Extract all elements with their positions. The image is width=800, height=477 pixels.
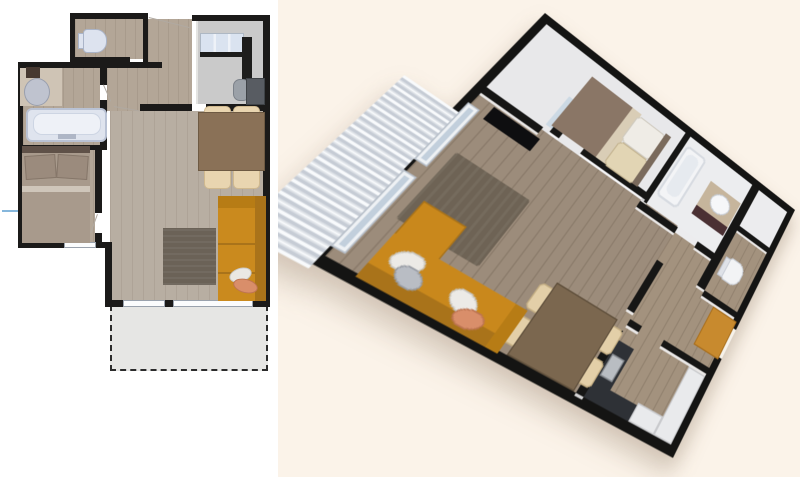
wall bbox=[70, 13, 75, 62]
bathtub-faucet bbox=[58, 134, 76, 139]
wall bbox=[165, 300, 173, 307]
wall bbox=[100, 68, 107, 85]
2d-floor-plan-panel bbox=[0, 0, 278, 477]
living-window bbox=[123, 300, 165, 307]
blanket-fold bbox=[22, 186, 90, 192]
headboard bbox=[22, 146, 90, 153]
terrace bbox=[110, 305, 268, 371]
dimension-mark bbox=[2, 210, 18, 212]
towel bbox=[26, 67, 40, 78]
kitchen-counter-edge bbox=[242, 37, 252, 82]
fridge bbox=[246, 78, 265, 105]
wall bbox=[105, 248, 112, 307]
floor-plan-sheet bbox=[0, 0, 800, 477]
kitchen-upper-cabinet bbox=[200, 33, 244, 53]
bed-pillow bbox=[24, 154, 57, 180]
bed-pillow bbox=[56, 154, 89, 180]
wall bbox=[70, 13, 148, 19]
bathroom-sink bbox=[24, 78, 50, 106]
wall bbox=[140, 104, 192, 111]
wall bbox=[192, 15, 270, 21]
sofa-armrest bbox=[218, 196, 255, 208]
wall bbox=[253, 300, 270, 307]
toilet bbox=[83, 29, 107, 53]
living-window bbox=[173, 300, 253, 307]
wall bbox=[143, 13, 148, 62]
bathtub-basin bbox=[33, 113, 101, 135]
wall bbox=[110, 300, 123, 307]
3d-apartment bbox=[305, 13, 795, 458]
rug bbox=[163, 228, 216, 285]
dining-table bbox=[198, 112, 265, 171]
sofa-cushion-seam bbox=[218, 243, 255, 245]
3d-floor-plan-panel bbox=[278, 0, 800, 477]
kitchen-edge bbox=[196, 21, 198, 104]
wall bbox=[95, 150, 102, 213]
